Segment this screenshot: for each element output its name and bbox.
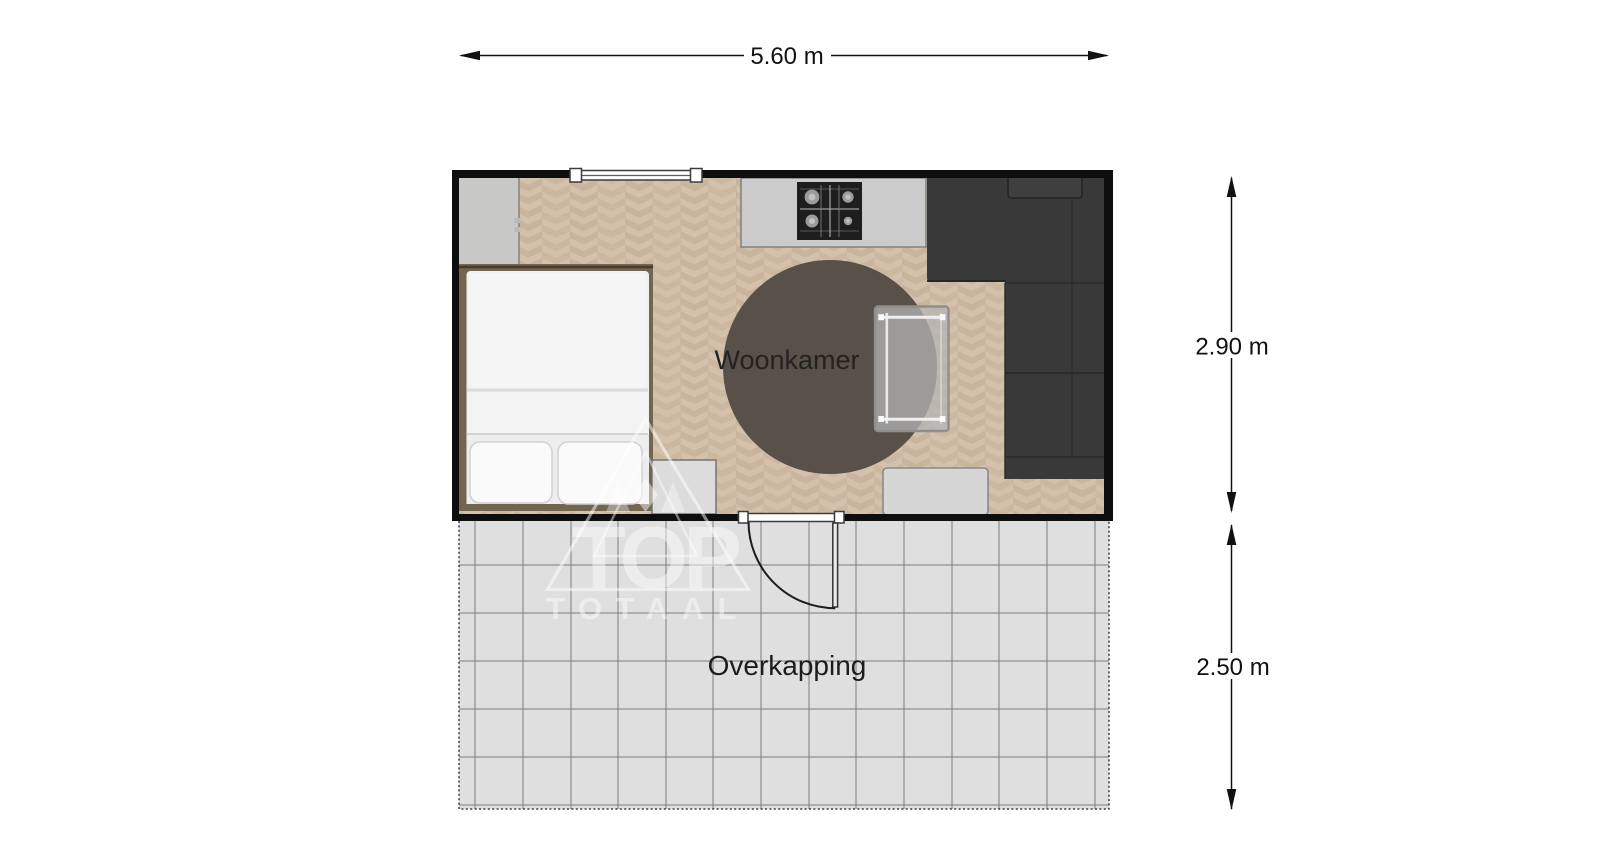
svg-text:TOTAAL: TOTAAL xyxy=(546,591,750,626)
svg-text:Woonkamer: Woonkamer xyxy=(714,345,859,375)
svg-text:5.60 m: 5.60 m xyxy=(750,43,823,70)
svg-text:2.90 m: 2.90 m xyxy=(1195,334,1268,361)
svg-text:2.50 m: 2.50 m xyxy=(1196,654,1269,681)
svg-text:Overkapping: Overkapping xyxy=(708,650,867,681)
